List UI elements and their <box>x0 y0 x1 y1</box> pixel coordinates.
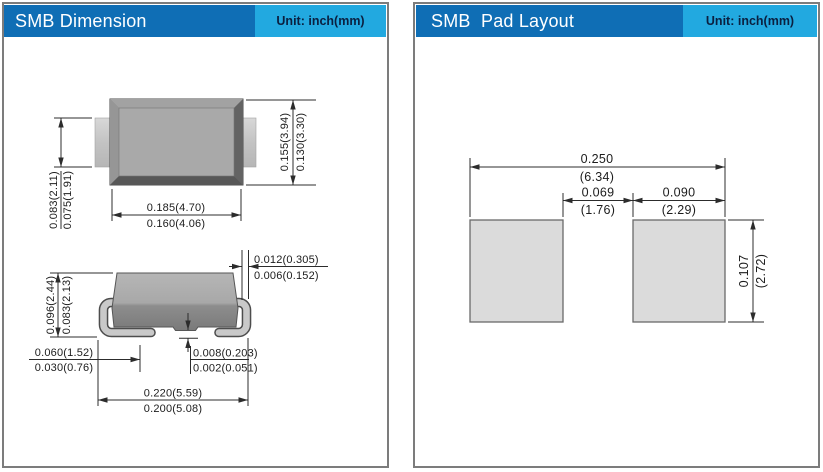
datasheet-page: SMB Dimension Unit: inch(mm) SMB Pad Lay… <box>0 0 823 472</box>
unit-badge: Unit: inch(mm) <box>255 5 386 37</box>
unit-badge: Unit: inch(mm) <box>683 5 817 37</box>
panel-smb-dimension: SMB Dimension Unit: inch(mm) <box>2 2 389 468</box>
panel-title: SMB Dimension <box>4 5 255 37</box>
panel-smb-pad-layout: SMB Pad Layout Unit: inch(mm) <box>413 2 820 468</box>
panel-title: SMB Pad Layout <box>416 5 691 37</box>
